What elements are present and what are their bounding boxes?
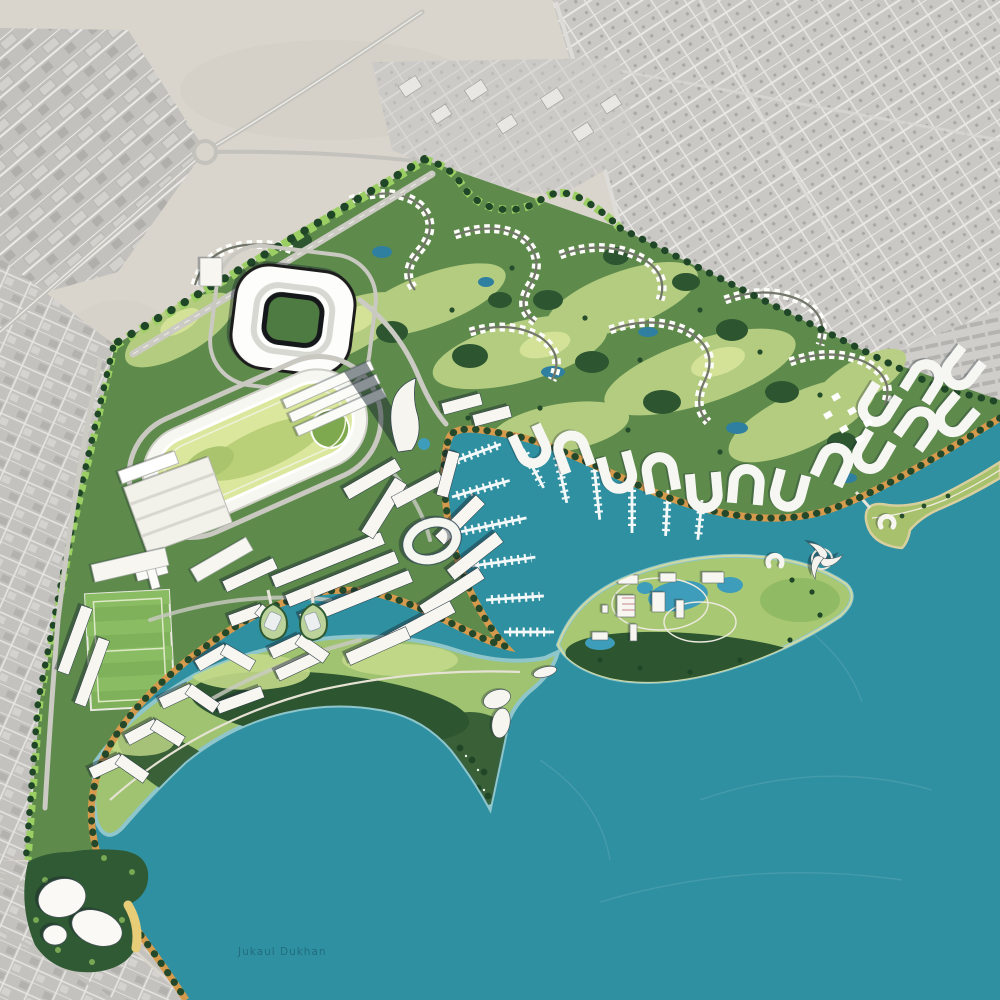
roundabout: [194, 141, 216, 163]
masterplan-svg: Jukaul Dukhan: [0, 0, 1000, 1000]
stadium-pitch: [262, 293, 323, 347]
sea-name-label: Jukaul Dukhan: [237, 946, 327, 958]
beach-hotel: [24, 849, 148, 972]
masterplan-map: Jukaul Dukhan: [0, 0, 1000, 1000]
